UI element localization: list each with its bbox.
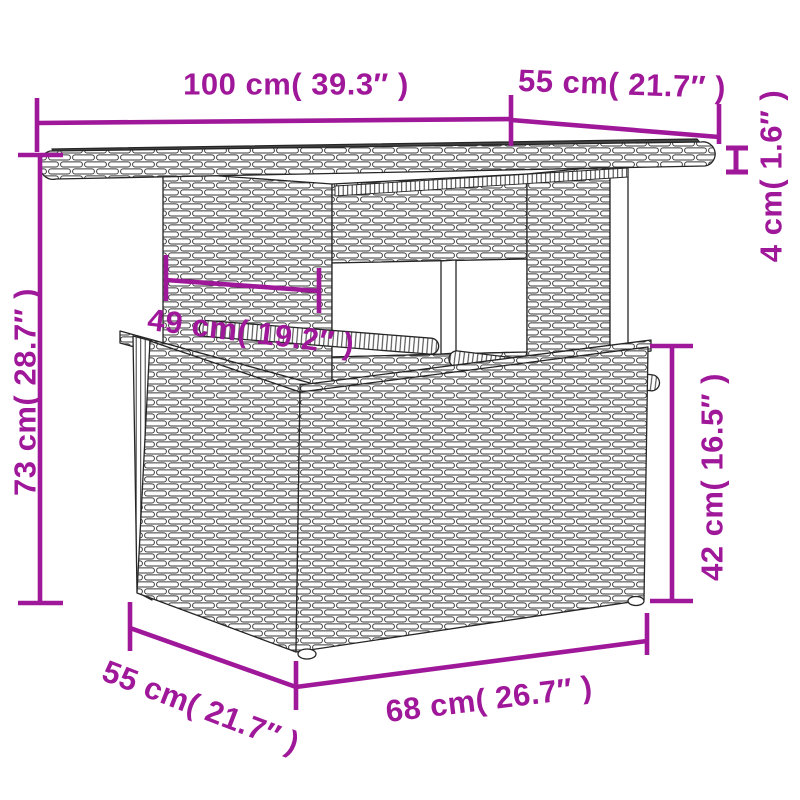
dim-label-top-width: 100 cm( 39.3″ ) <box>183 69 409 100</box>
pedestal-right-column <box>527 166 610 356</box>
dim-label-top-thickness: 4 cm( 1.6″ ) <box>756 90 787 262</box>
dimension-diagram: 100 cm( 39.3″ ) 55 cm( 21.7″ ) 4 cm( 1.6… <box>0 0 800 800</box>
dim-label-overall-height: 73 cm( 28.7″ ) <box>10 288 41 496</box>
dim-line-top-depth <box>511 104 719 144</box>
dim-label-base-height: 42 cm( 16.5″ ) <box>697 373 728 581</box>
pedestal-corner-post <box>610 164 628 352</box>
opening-post <box>441 260 456 354</box>
base-left-face <box>137 341 300 652</box>
dim-label-top-depth: 55 cm( 21.7″ ) <box>518 65 727 103</box>
base-front-face <box>296 347 648 652</box>
rattan-table-drawing <box>40 139 716 659</box>
foot-front-left <box>298 649 316 659</box>
dim-line-top-thickness <box>726 148 748 172</box>
foot-front-right <box>628 597 644 606</box>
